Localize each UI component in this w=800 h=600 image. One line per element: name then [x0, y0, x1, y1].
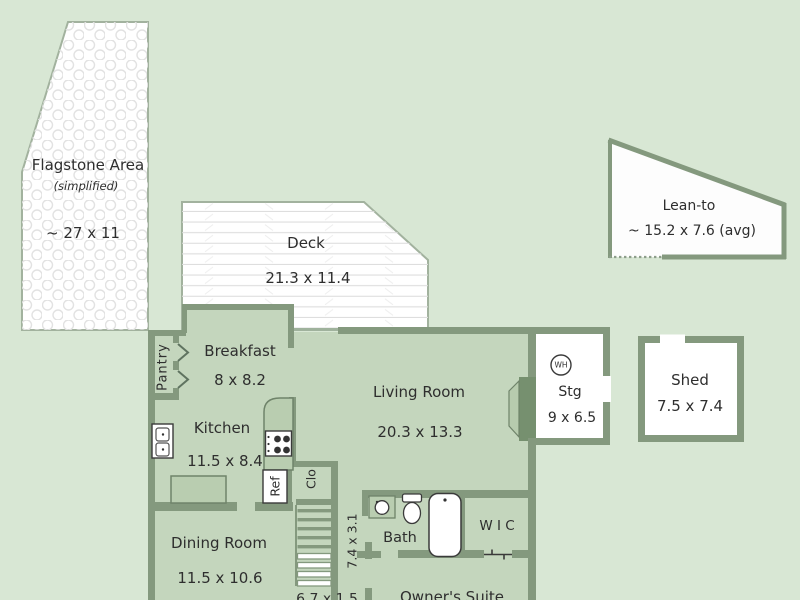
wall-hall-stub-bottom [365, 588, 372, 600]
wall-wic-bottom-1 [458, 550, 484, 558]
wall-pantry-stub-2 [173, 361, 179, 370]
bath-label: Bath [383, 530, 417, 546]
shed-door-opening [660, 335, 685, 344]
closet-label: Clo [303, 469, 318, 489]
water-heater-label: WH [554, 361, 567, 370]
refrigerator-icon: Ref [263, 470, 287, 503]
flagstone-dim: ~ 27 x 11 [46, 224, 120, 242]
stove-icon [266, 431, 292, 456]
wall-closet-bottom [296, 499, 337, 505]
breakfast-nook-floor [186, 309, 289, 334]
refrigerator-label: Ref [267, 476, 282, 497]
storage-door-opening [603, 376, 611, 402]
kitchen-peninsula-counter [171, 476, 226, 503]
owners-suite-partial-dim: 6.7 x 1.5 [296, 592, 358, 600]
hall-dim: 7.4 x 3.1 [344, 513, 359, 568]
shed-walls [642, 340, 741, 439]
living-room-dim: 20.3 x 13.3 [377, 423, 462, 441]
wall-hall-stub-cross [357, 551, 381, 558]
wall-pantry-bottom [155, 393, 179, 400]
wall-closet-top [289, 461, 338, 467]
shed-label: Shed [671, 371, 709, 389]
toilet-icon [403, 494, 422, 524]
wic-label: W I C [479, 518, 514, 534]
owners-suite-label: Owner's Suite [400, 588, 504, 600]
dining-room-label: Dining Room [171, 534, 267, 552]
floor-plan: Flagstone Area (simplified) ~ 27 x 11 De… [0, 0, 800, 600]
lean-to-label: Lean-to [663, 198, 716, 214]
wall-storage-right-1 [603, 327, 610, 376]
deck-door-icon [294, 328, 338, 331]
wall-breakfast-right [288, 304, 294, 348]
water-heater-icon: WH [551, 355, 571, 375]
deck-label: Deck [287, 234, 325, 252]
sink-icon [152, 424, 173, 458]
wall-right-exterior [528, 327, 536, 600]
storage-room: WH Stg 9 x 6.5 [528, 327, 611, 445]
wall-breakfast-top [182, 304, 294, 310]
wall-left-exterior [148, 330, 155, 600]
living-room-label: Living Room [373, 383, 465, 401]
storage-dim: 9 x 6.5 [548, 410, 596, 426]
shed: Shed 7.5 x 7.4 [642, 335, 741, 439]
bath-sink-icon [369, 496, 395, 518]
shed-dim: 7.5 x 7.4 [657, 397, 723, 415]
kitchen-label: Kitchen [194, 419, 250, 437]
wall-top-main [338, 327, 610, 334]
storage-label: Stg [558, 384, 581, 400]
flagstone-sub-label: (simplified) [54, 179, 119, 193]
kitchen-dim: 11.5 x 8.4 [187, 452, 263, 470]
breakfast-dim: 8 x 8.2 [214, 371, 266, 389]
dining-room-dim: 11.5 x 10.6 [177, 569, 262, 587]
pantry-label: Pantry [156, 343, 171, 391]
bathtub-icon [429, 494, 461, 557]
wall-pantry-stub-1 [173, 330, 179, 343]
wall-storage-bottom [528, 438, 610, 445]
floor-plan-page: Flagstone Area (simplified) ~ 27 x 11 De… [0, 0, 800, 600]
wall-breakfast-left [182, 304, 187, 333]
flagstone-label: Flagstone Area [32, 156, 144, 174]
lean-to-dim: ~ 15.2 x 7.6 (avg) [628, 223, 756, 239]
wall-stairs-right [331, 461, 338, 600]
deck-dim: 21.3 x 11.4 [265, 269, 350, 287]
wall-wic-bottom-2 [512, 550, 528, 558]
wall-hall-stub-top [362, 490, 368, 516]
breakfast-label: Breakfast [204, 342, 276, 360]
